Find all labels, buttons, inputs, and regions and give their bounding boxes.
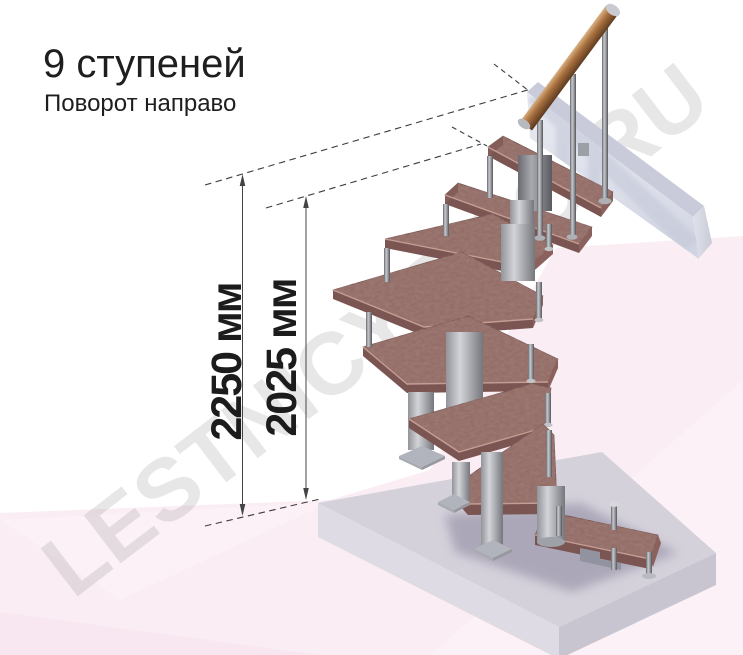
- svg-text:Поворот направо: Поворот направо: [44, 90, 236, 117]
- svg-text:2250 мм: 2250 мм: [203, 283, 251, 440]
- svg-text:2025 мм: 2025 мм: [258, 279, 306, 436]
- svg-text:9 ступеней: 9 ступеней: [43, 42, 246, 86]
